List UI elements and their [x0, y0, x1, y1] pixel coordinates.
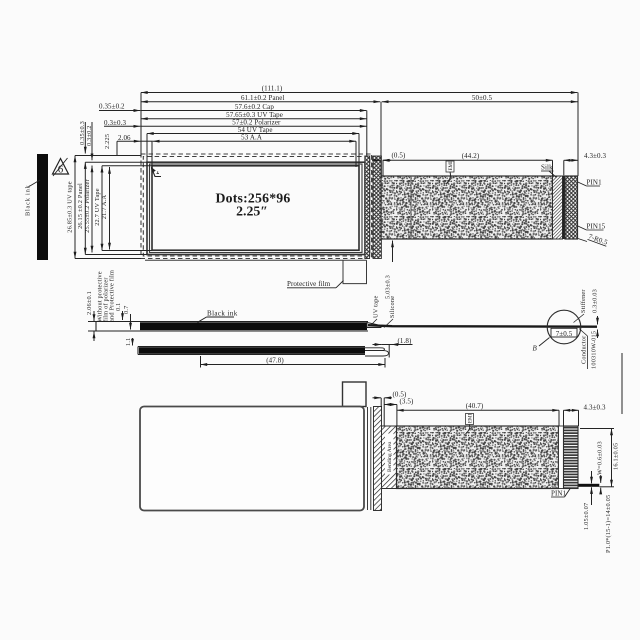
svg-text:EMI: EMI: [469, 414, 474, 424]
svg-text:50±0.5: 50±0.5: [472, 94, 493, 102]
svg-text:(40.7): (40.7): [466, 402, 484, 410]
svg-text:57.6±0.2 Cap: 57.6±0.2 Cap: [235, 103, 274, 111]
svg-text:Protective film: Protective film: [287, 280, 331, 288]
svg-text:(47.8): (47.8): [266, 357, 284, 365]
svg-text:0.1: 0.1: [115, 303, 122, 311]
svg-text:Silk: Silk: [541, 164, 553, 172]
svg-text:Bending Area: Bending Area: [387, 441, 393, 472]
svg-text:B: B: [533, 345, 538, 353]
svg-text:W=0.6±0.03: W=0.6±0.03: [597, 441, 604, 475]
svg-text:2.06±0.1: 2.06±0.1: [86, 291, 93, 315]
svg-text:(44.2): (44.2): [462, 152, 480, 160]
svg-text:61.1±0.2 Panel: 61.1±0.2 Panel: [241, 94, 285, 102]
svg-text:(3.5): (3.5): [400, 397, 414, 405]
svg-text:53 A.A: 53 A.A: [241, 134, 262, 142]
svg-text:and Protective film: and Protective film: [109, 270, 116, 322]
svg-text:0.3±0.03: 0.3±0.03: [592, 289, 599, 313]
svg-text:Conductor: Conductor: [581, 335, 588, 364]
svg-text:0.35±0.3: 0.35±0.3: [79, 121, 86, 145]
svg-text:1.05±0.07: 1.05±0.07: [583, 503, 590, 530]
svg-text:PIN15: PIN15: [587, 223, 606, 231]
svg-text:EMI: EMI: [449, 161, 454, 171]
svg-text:(0.5): (0.5): [392, 152, 406, 160]
svg-text:(111.1): (111.1): [262, 85, 283, 93]
svg-text:4.3±0.3: 4.3±0.3: [584, 152, 606, 160]
svg-text:25.55±0.2 Polarizer: 25.55±0.2 Polarizer: [84, 179, 91, 233]
svg-text:100310W-015: 100310W-015: [591, 331, 598, 369]
svg-text:21.7 A.A: 21.7 A.A: [101, 194, 108, 219]
svg-text:0.35±0.2: 0.35±0.2: [99, 103, 125, 111]
svg-text:(1.8): (1.8): [398, 337, 412, 345]
svg-text:22.7 UV Tape: 22.7 UV Tape: [94, 188, 101, 226]
svg-text:0.7: 0.7: [123, 306, 130, 314]
svg-text:Stiffener: Stiffener: [580, 289, 587, 313]
svg-text:4.3±0.3: 4.3±0.3: [584, 404, 606, 412]
svg-text:Black ink: Black ink: [25, 184, 32, 216]
svg-text:P1.0*(15-1)=14±0.05: P1.0*(15-1)=14±0.05: [605, 495, 612, 553]
svg-text:PIN1: PIN1: [551, 490, 567, 498]
svg-text:1.1: 1.1: [125, 338, 132, 346]
svg-text:5.03±0.3: 5.03±0.3: [385, 275, 392, 299]
svg-text:2.06: 2.06: [118, 134, 131, 142]
svg-text:26.85±0.3 UV tape: 26.85±0.3 UV tape: [67, 181, 74, 233]
svg-text:Black ink: Black ink: [207, 310, 238, 318]
svg-text:2.225: 2.225: [104, 134, 111, 149]
svg-text:26.15 ±0.2 Panel: 26.15 ±0.2 Panel: [77, 183, 84, 229]
svg-text:2.25″: 2.25″: [236, 204, 268, 219]
svg-text:0.3±0.3: 0.3±0.3: [104, 119, 126, 127]
svg-text:7±0.5: 7±0.5: [556, 330, 573, 338]
svg-text:UV tape: UV tape: [373, 296, 380, 318]
svg-text:16.1±0.05: 16.1±0.05: [613, 443, 620, 470]
svg-text:PIN1: PIN1: [587, 179, 603, 187]
